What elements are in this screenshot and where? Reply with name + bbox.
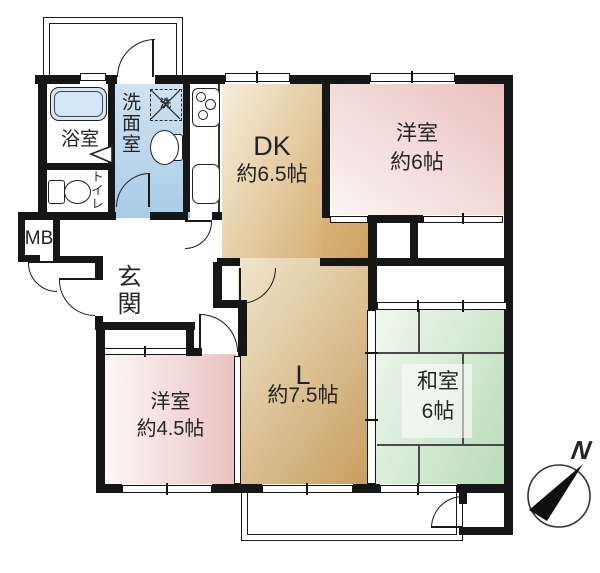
room-western6: [330, 84, 504, 215]
wall-segment: [183, 84, 190, 212]
dk-living-door-leaf: [239, 268, 241, 304]
wall-segment: [212, 212, 222, 220]
window-tick: [365, 419, 378, 421]
wall-segment: [322, 84, 330, 218]
window-tick: [417, 483, 419, 495]
window-tick: [462, 213, 464, 224]
wall-segment: [217, 258, 240, 266]
washbasin: [150, 130, 179, 165]
western6-size: 約6帖: [330, 151, 504, 175]
window-tick: [417, 300, 419, 312]
toilet-label: トイレ: [87, 170, 106, 216]
wall-segment: [457, 484, 513, 493]
porch-door-leaf: [152, 39, 154, 77]
washing-machine-label: 洗: [160, 98, 171, 111]
window-tick: [166, 483, 168, 495]
western6-sliding-door: [330, 216, 368, 223]
oshiire-sliding-door: [377, 302, 507, 310]
storage-door-leaf: [431, 526, 463, 528]
meter-box-door-leaf: [28, 261, 57, 263]
wall-segment: [150, 212, 188, 220]
bathtub-inner-line: [54, 91, 103, 117]
wall-segment: [353, 484, 380, 493]
compass-north-label: N: [563, 436, 598, 466]
meter-box-label: MB: [21, 228, 57, 250]
tatami-line: [418, 310, 420, 353]
window-tick: [411, 71, 413, 83]
western45-door-arc: [200, 314, 238, 352]
window-tick: [365, 352, 378, 354]
wall-segment: [410, 223, 418, 260]
balcony-outline-inner: [247, 493, 457, 535]
stove-burner: [205, 99, 216, 110]
meter-box-door-arc: [28, 263, 57, 292]
living-size: 約7.5帖: [238, 384, 368, 408]
stove-burner: [196, 92, 206, 102]
washroom-door-leaf: [148, 173, 150, 207]
japanese-size: 6帖: [396, 400, 480, 424]
washroom-label: 洗面室: [116, 92, 143, 182]
window-tick: [306, 483, 308, 495]
bath-label: 浴室: [54, 129, 106, 151]
wall-segment: [155, 75, 225, 84]
wall-segment: [238, 300, 247, 356]
front-door-leaf: [59, 278, 95, 280]
wall-segment: [368, 215, 423, 223]
bath-window: [80, 73, 106, 81]
stove-burner: [198, 110, 208, 120]
kitchen-hall-door-arc: [185, 222, 212, 249]
wall-segment: [38, 75, 47, 220]
wall-segment: [290, 75, 370, 84]
kitchen-hall-door-leaf: [185, 220, 212, 222]
wall-segment: [368, 258, 507, 266]
tatami-line: [377, 444, 504, 446]
wall-segment: [459, 527, 513, 535]
living-japanese-sliding-door: [367, 310, 376, 484]
wall-segment: [212, 484, 262, 493]
window-tick: [462, 300, 464, 312]
front-door-arc: [59, 280, 95, 316]
washing-machine: 洗: [150, 89, 182, 121]
window-tick: [144, 346, 146, 357]
window-tick: [256, 71, 258, 83]
western45-label: 洋室: [105, 391, 236, 414]
dk-label: DK: [222, 131, 322, 162]
western6-label: 洋室: [330, 122, 504, 146]
western45-size: 約4.5帖: [105, 418, 236, 441]
tatami-line: [418, 444, 420, 484]
tatami-line: [377, 352, 504, 354]
wall-segment: [106, 75, 117, 84]
japanese-label: 和室: [396, 370, 480, 394]
entrance-label: 玄関: [109, 264, 144, 324]
wall-segment: [95, 262, 103, 280]
floorplan-canvas: 洗 浴室 洗面室 トイレ MB 玄関 DK 約6.5帖 洋室 約6帖 L 約7.…: [0, 0, 600, 573]
dk-size: 約6.5帖: [212, 163, 332, 187]
toilet-tank: [48, 180, 65, 204]
western45-door-leaf: [199, 314, 201, 352]
porch-outline-inner: [49, 23, 177, 77]
